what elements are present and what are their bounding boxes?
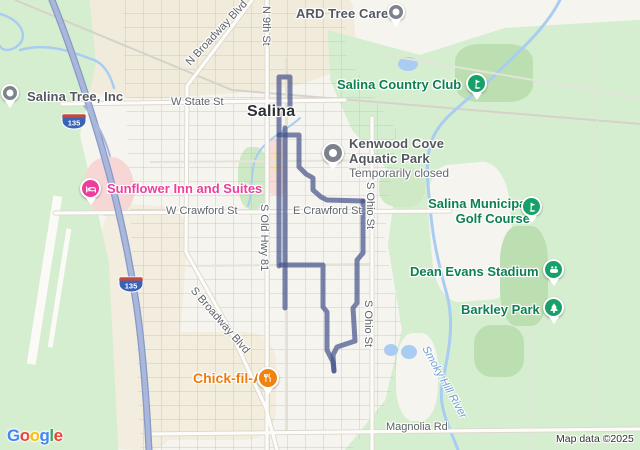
google-logo[interactable]: Google (7, 426, 63, 446)
poi-label-sunflower-inn[interactable]: Sunflower Inn and Suites (107, 181, 262, 196)
street-label-w-state: W State St (171, 96, 224, 108)
poi-label-country-club[interactable]: Salina Country Club (337, 77, 461, 92)
fork-knife-icon (263, 373, 274, 384)
poi-label-salina-tree[interactable]: Salina Tree, Inc (27, 89, 123, 104)
street-label-e-crawford: E Crawford St (293, 205, 361, 217)
poi-label-chick-fil-a[interactable]: Chick-fil-A (193, 370, 263, 386)
stadium-icon (548, 264, 559, 275)
map-attribution: Map data ©2025 (556, 433, 634, 445)
golf-course-pin-icon[interactable] (521, 196, 542, 217)
poi-label-kenwood[interactable]: Kenwood Cove Aquatic Park Temporarily cl… (349, 136, 449, 180)
country-club-golf-pin-icon[interactable] (466, 73, 487, 94)
street-label-magnolia: Magnolia Rd (386, 421, 448, 433)
poi-label-barkley-park[interactable]: Barkley Park (461, 302, 540, 317)
route-path-ohio (333, 201, 363, 371)
interstate-highway (52, 0, 149, 450)
route-path-south-loop (281, 265, 334, 371)
city-label-salina: Salina (247, 103, 295, 121)
golf-flag-icon (526, 201, 537, 212)
map-vector-layer (0, 0, 640, 450)
street-label-s-ohio-south: S Ohio St (362, 300, 374, 347)
ard-tree-care-pin-icon[interactable] (387, 3, 405, 21)
svg-text:135: 135 (68, 119, 81, 128)
hotel-pin-icon[interactable] (80, 178, 101, 199)
interstate-shield-icon: 135 (61, 113, 87, 130)
svg-text:135: 135 (125, 282, 138, 291)
poi-label-dean-evans[interactable]: Dean Evans Stadium (410, 264, 539, 279)
map-canvas[interactable]: W State St N Broadway Blvd N 9th St W Cr… (0, 0, 640, 450)
pond-south-2 (401, 345, 417, 359)
poi-status-kenwood: Temporarily closed (349, 166, 449, 180)
salina-tree-pin-icon[interactable] (1, 84, 19, 102)
street-label-s-old-hwy-81: S Old Hwy 81 (258, 204, 270, 271)
interstate-shield-icon: 135 (118, 276, 144, 293)
street-label-s-ohio-north: S Ohio St (364, 182, 376, 229)
pine-tree-icon (548, 302, 559, 313)
poi-label-golf-course[interactable]: Salina Municipal Golf Course (408, 196, 530, 226)
poi-label-ard-tree-care[interactable]: ARD Tree Care (296, 6, 388, 21)
bed-icon (85, 183, 96, 194)
park-tree-pin-icon[interactable] (543, 297, 564, 318)
kenwood-pin-icon[interactable] (322, 142, 344, 164)
restaurant-pin-icon[interactable] (257, 367, 279, 389)
pond-south-1 (384, 344, 398, 356)
street-label-n-9th: N 9th St (260, 6, 272, 46)
street-label-w-crawford: W Crawford St (166, 205, 238, 217)
route-overlay[interactable] (279, 77, 363, 371)
airport-runways (27, 195, 72, 364)
golf-flag-icon (471, 78, 482, 89)
stadium-pin-icon[interactable] (543, 259, 564, 280)
